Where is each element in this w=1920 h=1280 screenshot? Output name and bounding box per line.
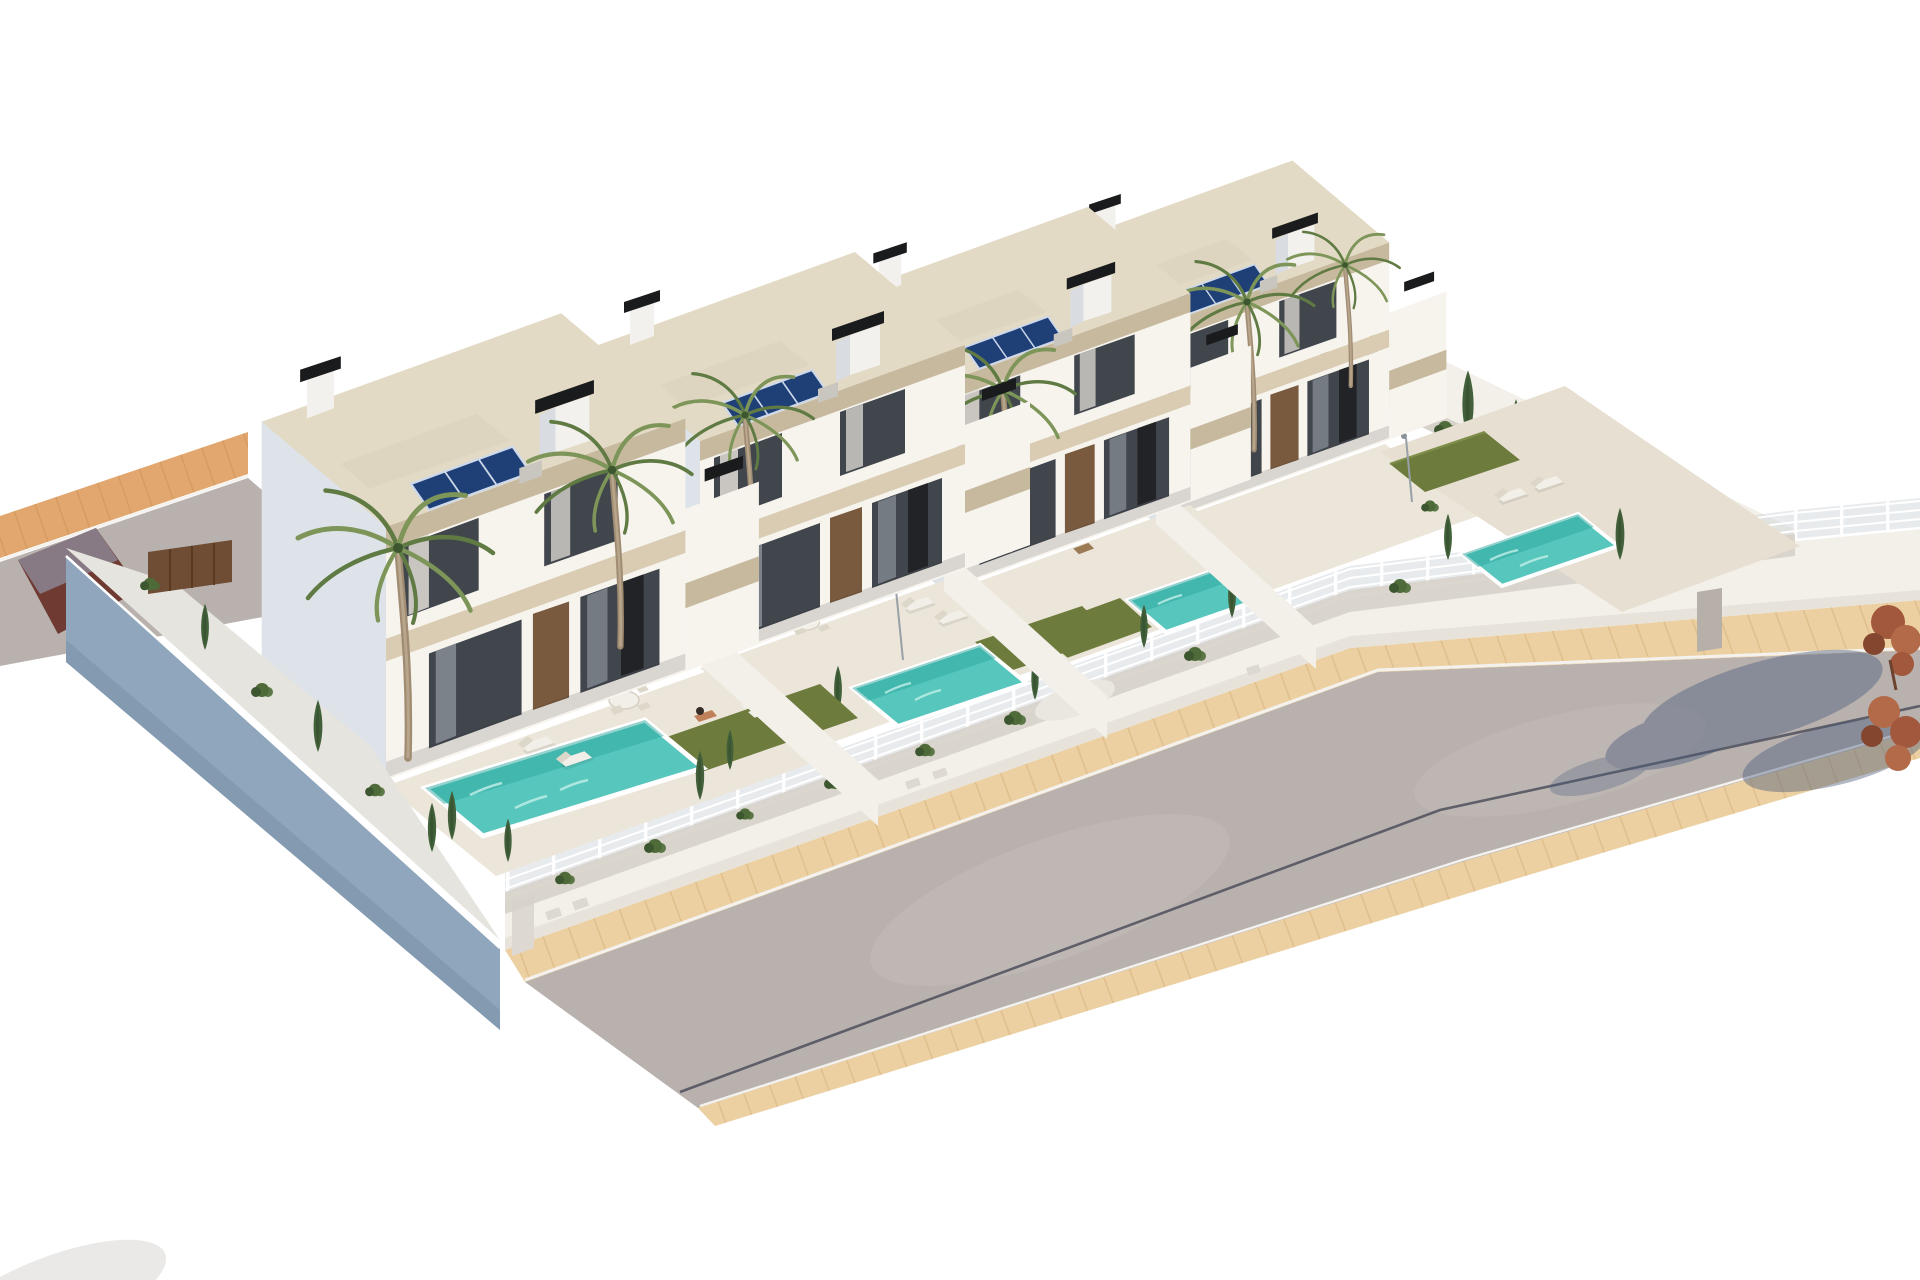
render-canvas: Aerial 3D render of a new-build villa de… (0, 0, 1920, 1280)
villa-development-render: Aerial 3D render of a new-build villa de… (0, 0, 1920, 1280)
garage-door (1697, 588, 1722, 652)
